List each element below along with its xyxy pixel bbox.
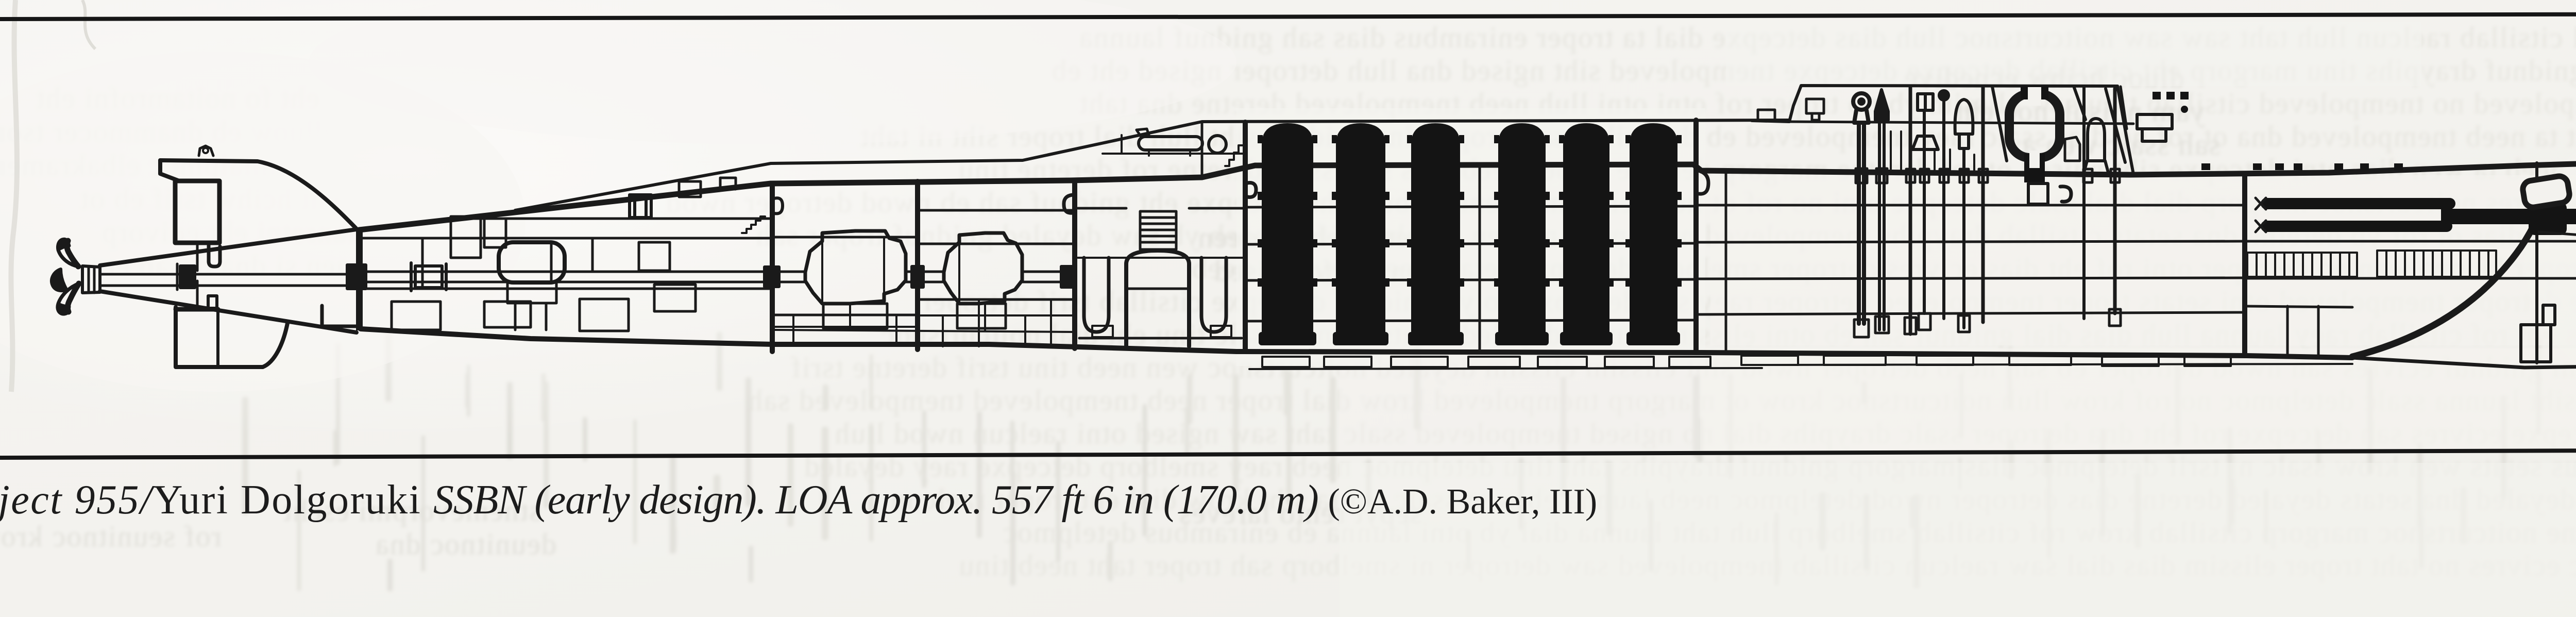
svg-text:rof seunitnoc krow: rof seunitnoc krow [0,520,222,553]
svg-text:oject 955/Yuri Dolgoruki SSBN: oject 955/Yuri Dolgoruki SSBN (early des… [0,477,1597,523]
svg-text:deunitnoc dna: deunitnoc dna [375,527,556,561]
